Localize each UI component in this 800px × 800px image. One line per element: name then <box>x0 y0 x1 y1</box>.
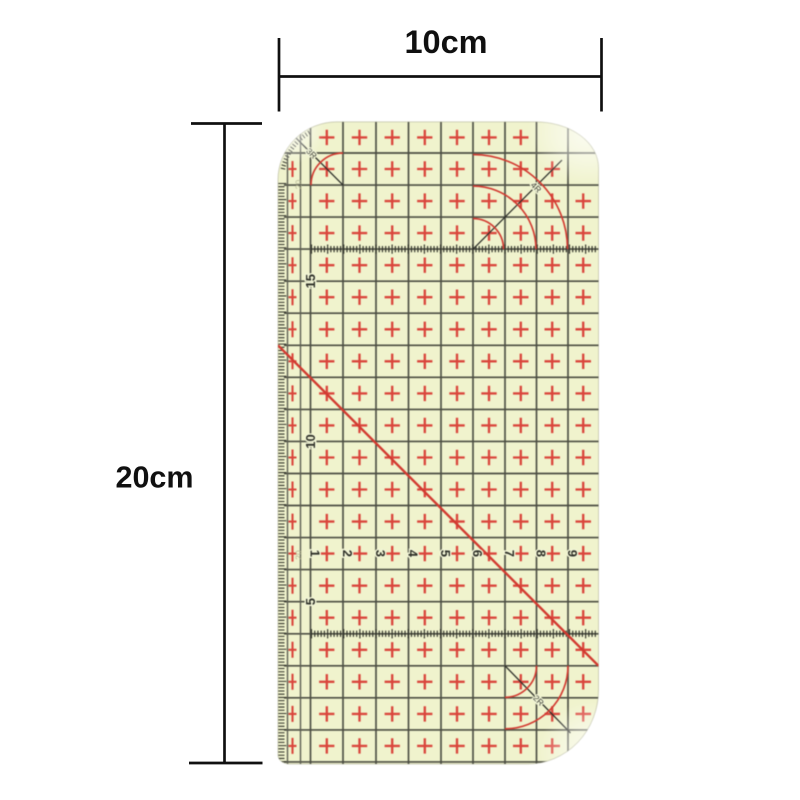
svg-text:2: 2 <box>340 550 355 557</box>
svg-text:7: 7 <box>502 550 517 557</box>
svg-text:10cm: 10cm <box>404 24 487 60</box>
svg-text:9: 9 <box>565 550 580 557</box>
svg-text:20cm: 20cm <box>115 461 193 495</box>
svg-text:4: 4 <box>406 550 421 558</box>
svg-text:8: 8 <box>534 550 549 557</box>
svg-text:5: 5 <box>303 598 318 605</box>
svg-text:1: 1 <box>308 550 323 557</box>
svg-text:5: 5 <box>438 550 453 557</box>
svg-text:6: 6 <box>470 550 485 557</box>
svg-text:10: 10 <box>303 434 318 448</box>
svg-text:20: 20 <box>294 550 304 560</box>
svg-text:20: 20 <box>294 180 304 190</box>
svg-text:15: 15 <box>303 274 318 288</box>
svg-text:3: 3 <box>373 550 388 557</box>
